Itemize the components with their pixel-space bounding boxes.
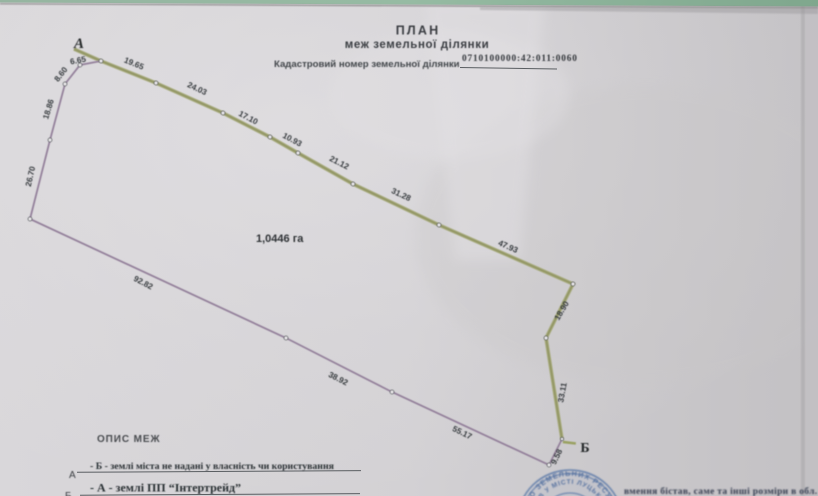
svg-text:- Б - землі міста не надані у: - Б - землі міста не надані у власність … <box>90 461 335 472</box>
svg-text:ПЛАН: ПЛАН <box>396 24 441 38</box>
svg-text:Б: Б <box>580 441 589 456</box>
svg-text:- А - землі ПП “Інтертрейд”: - А - землі ПП “Інтертрейд” <box>90 481 241 495</box>
svg-text:Кадастровий номер земельної ді: Кадастровий номер земельної ділянки <box>274 59 460 70</box>
svg-text:меж земельної ділянки: меж земельної ділянки <box>345 39 489 51</box>
svg-text:ОПИС МЕЖ: ОПИС МЕЖ <box>97 434 160 445</box>
svg-text:А: А <box>73 36 84 52</box>
svg-text:1,0446 га: 1,0446 га <box>256 233 304 245</box>
svg-text:вмення бістав, саме та інші ро: вмення бістав, саме та інші розміри в об… <box>624 486 818 496</box>
svg-text:0710100000:42:011:0060: 0710100000:42:011:0060 <box>462 54 578 64</box>
svg-text:А: А <box>69 470 76 481</box>
svg-text:Б: Б <box>65 491 72 496</box>
